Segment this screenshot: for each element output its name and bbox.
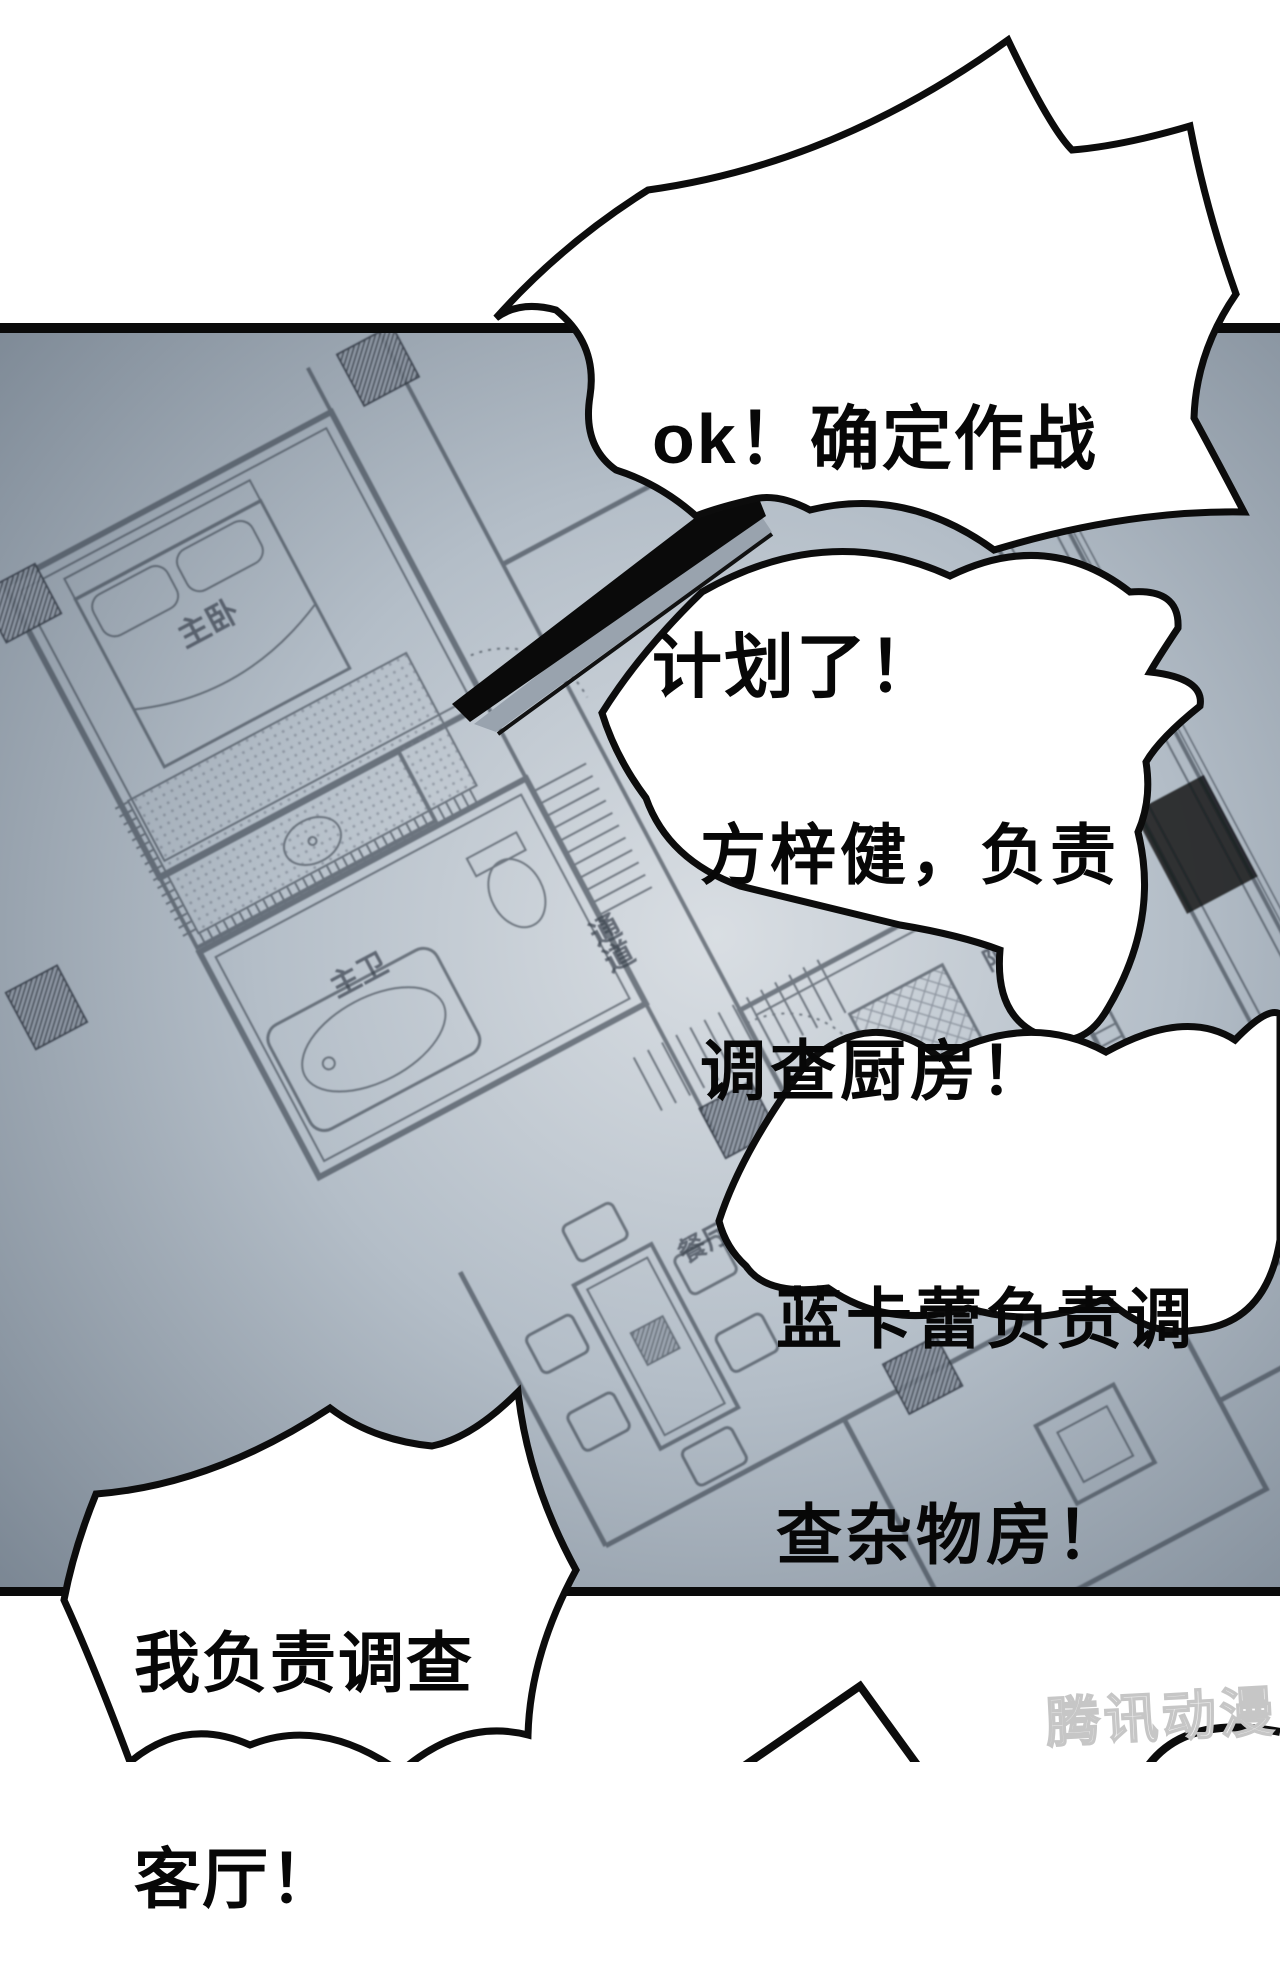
bubble-2-line-1: 方梓健，负责: [700, 820, 1120, 892]
bubble-4-line-2: 客厅！: [134, 1844, 474, 1916]
bubble-4-line-1: 我负责调查: [134, 1628, 474, 1700]
bottom-bubble-spike: [744, 1686, 918, 1762]
watermark: 腾讯动漫: [1044, 1682, 1279, 1754]
bubble-1-line-1: ok！确定作战: [652, 401, 1098, 477]
bubble-text-2: 方梓健，负责 调查厨房！: [700, 676, 1120, 1180]
bubble-3-line-2: 查杂物房！: [776, 1500, 1196, 1572]
bubble-2-line-2: 调查厨房！: [700, 1036, 1120, 1108]
bubble-text-4: 我负责调查 客厅！: [134, 1484, 474, 1988]
bubble-3-line-1: 蓝卡蕾负责调: [776, 1284, 1196, 1356]
bubble-text-3: 蓝卡蕾负责调 查杂物房！: [776, 1140, 1196, 1644]
